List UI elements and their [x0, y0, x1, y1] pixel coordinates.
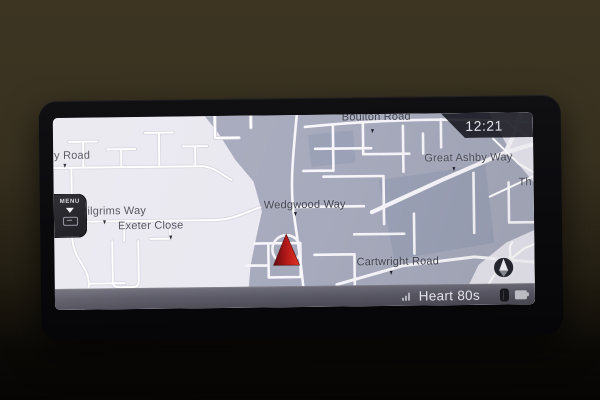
- radio-station-name: Heart 80s: [419, 287, 480, 303]
- road-label-boulton-road: Boulton Road: [342, 112, 411, 123]
- compass-button[interactable]: [493, 257, 514, 278]
- road-label-th-partial: Th: [519, 176, 532, 188]
- road-label-exeter-close: Exeter Close: [118, 219, 184, 232]
- road-label-wedgwood-way: Wedgwood Way: [264, 198, 346, 211]
- road-label-great-ashby-way: Great Ashby Way: [424, 151, 512, 164]
- navigation-screen: ry Road Pilgrims Way Exeter Close Wedgwo…: [53, 112, 535, 310]
- menu-page-icon: [62, 217, 77, 226]
- battery-icon: [515, 290, 527, 299]
- road-label-cartwright-road: Cartwright Road: [356, 255, 439, 268]
- map-canvas[interactable]: ry Road Pilgrims Way Exeter Close Wedgwo…: [53, 112, 535, 310]
- status-bar: Heart 80s: [55, 283, 535, 310]
- chevron-down-icon: [66, 208, 74, 213]
- road-label-pilgrims-way: Pilgrims Way: [80, 205, 146, 218]
- menu-tab-button[interactable]: MENU: [54, 194, 88, 238]
- clock-time: 12:21: [465, 117, 503, 133]
- menu-tab-label: MENU: [60, 199, 80, 205]
- road-label-ry-road: ry Road: [53, 150, 90, 162]
- bluetooth-icon: [500, 288, 509, 301]
- radio-signal-icon: [402, 291, 410, 300]
- infotainment-display: ry Road Pilgrims Way Exeter Close Wedgwo…: [39, 95, 564, 341]
